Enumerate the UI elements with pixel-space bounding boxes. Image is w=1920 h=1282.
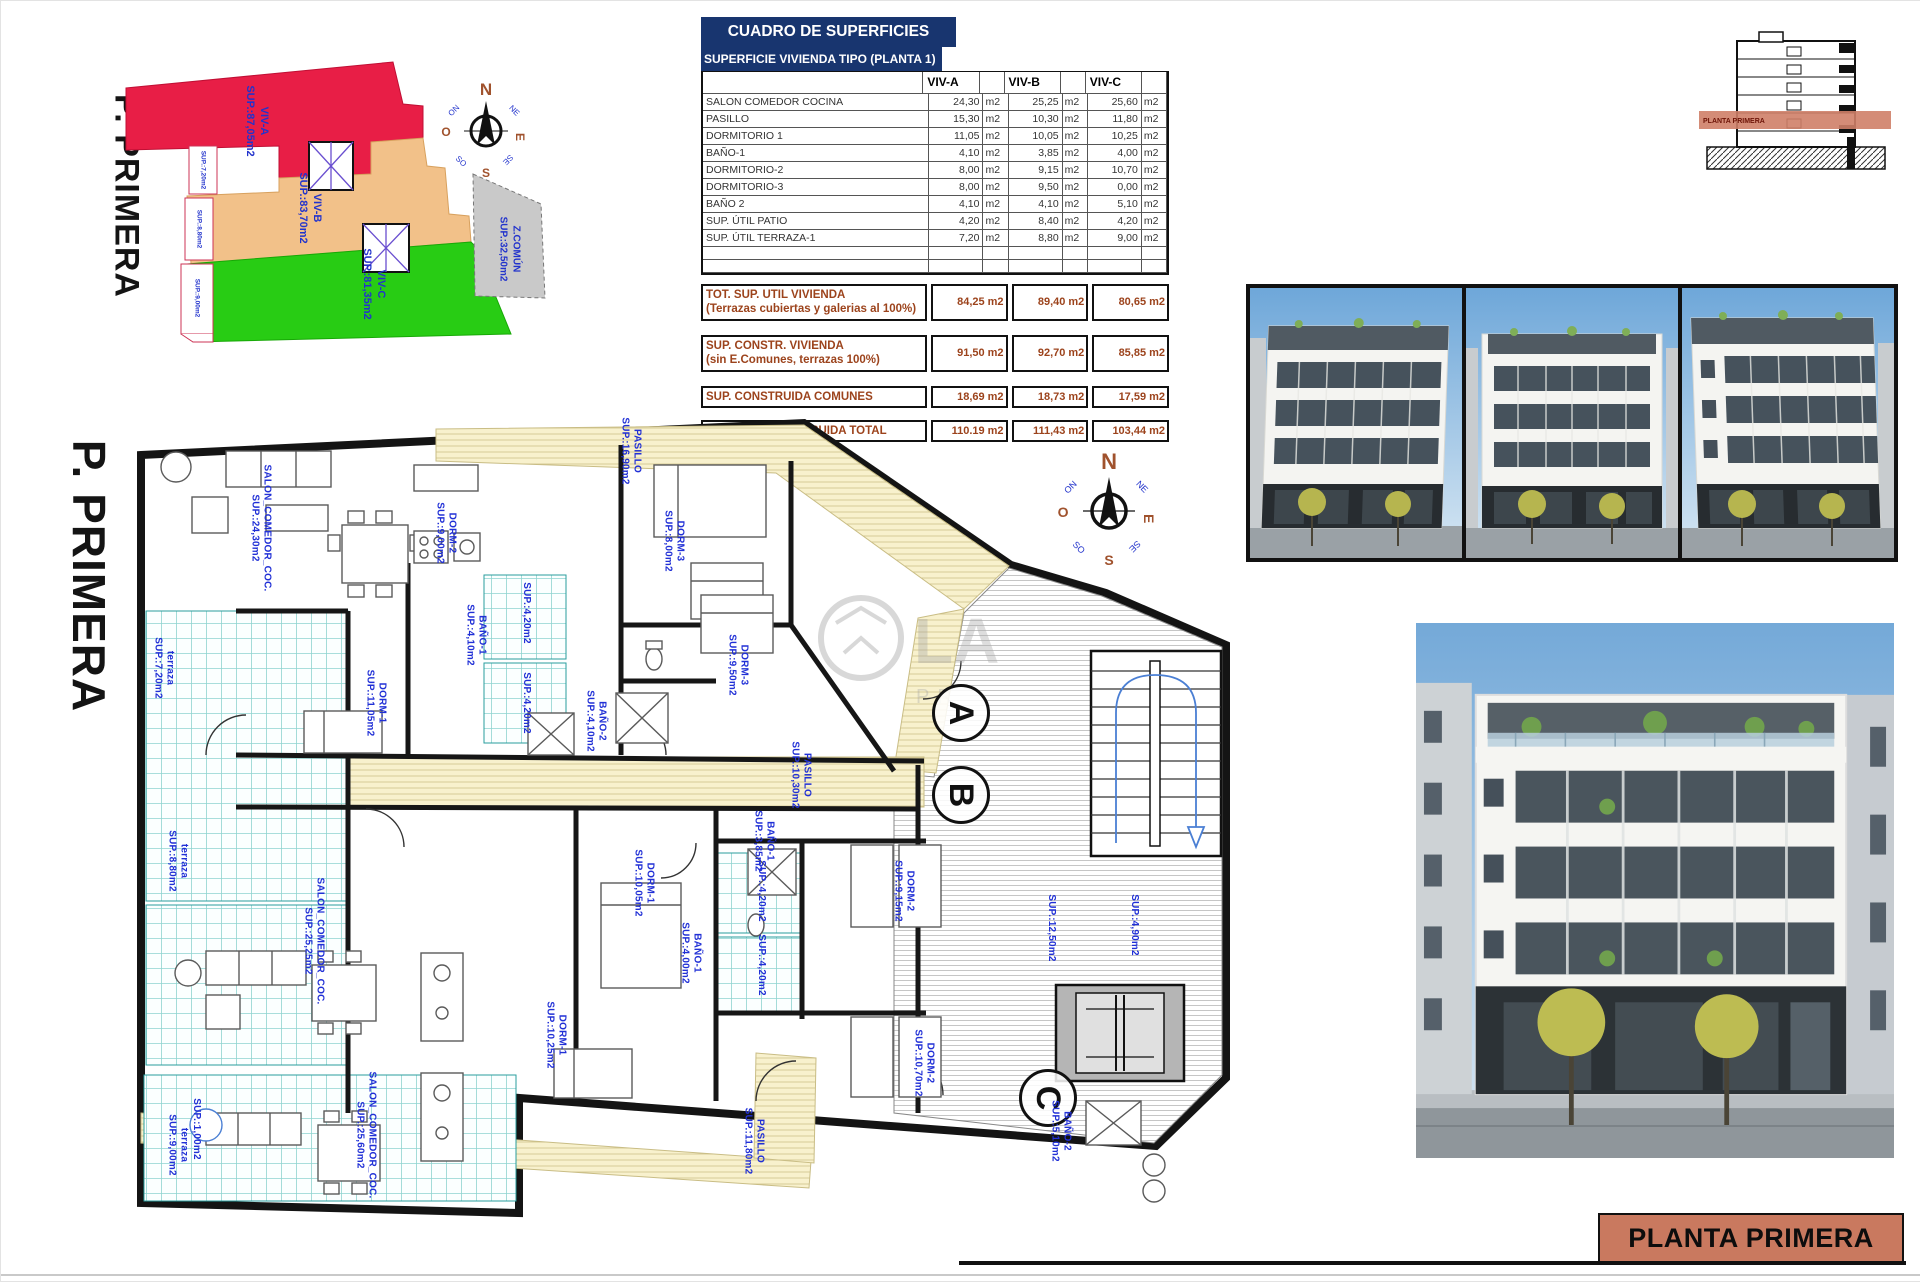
- key-plan: VIV-A SUP.:87,05m2 VIV-B SUP.:83,70m2 VI…: [71, 46, 571, 356]
- summary-sublabel: (sin E.Comunes, terrazas 100%): [706, 354, 880, 366]
- col-viv-c: VIV-C: [1086, 72, 1143, 94]
- summary-label: SUP. CONSTR. VIVIENDA: [706, 340, 844, 352]
- zone-label-viv-a: VIV-A SUP.:87,05m2: [242, 85, 270, 156]
- room-label: SALON_COMEDOR_COC. SUP.:25,25m2: [303, 878, 326, 1005]
- section-marker-b: B: [932, 766, 990, 824]
- room-label: SUP.:4,20m2: [520, 672, 532, 734]
- table-row: DORMITORIO-3 8,00m2 9,50m2 0,00m2: [703, 179, 1167, 196]
- table-row: SUP. ÚTIL TERRAZA-1 7,20m2 8,80m2 9,00m2: [703, 230, 1167, 247]
- svg-text:NE: NE: [1134, 479, 1150, 495]
- sheet-title: PLANTA PRIMERA: [1628, 1223, 1874, 1254]
- summary-label: SUP. CONSTRUIDA COMUNES: [706, 390, 873, 404]
- building-render-1: [1250, 288, 1462, 558]
- room-label: DORM-3 SUP.:8,00m2: [663, 510, 686, 572]
- zone-label-viv-b: VIV-B SUP.:83,70m2: [295, 172, 323, 243]
- surface-table: CUADRO DE SUPERFICIES SUPERFICIE VIVIEND…: [701, 17, 1169, 442]
- summary-constr-vivienda: SUP. CONSTR. VIVIENDA (sin E.Comunes, te…: [701, 335, 1169, 372]
- section-drawing: PLANTA PRIMERA: [1699, 27, 1895, 179]
- surface-table-title: CUADRO DE SUPERFICIES: [701, 17, 956, 47]
- zone-label-comun: Z.COMÚN SUP.:32,50m2: [497, 217, 522, 282]
- room-label: DORM-1 SUP.:10,05m2: [633, 849, 656, 916]
- elevator: [1056, 985, 1184, 1081]
- main-facade-render: [1416, 623, 1894, 1158]
- staircase: [1091, 651, 1221, 856]
- svg-text:N: N: [480, 80, 492, 99]
- room-label: DORM-3 SUP.:9,50m2: [727, 634, 750, 696]
- room-label: DORM-2 SUP.:9,00m2: [435, 502, 458, 564]
- svg-text:E: E: [1141, 514, 1157, 523]
- room-label: SALON_COMEDOR_COC. SUP.:24,30m2: [250, 465, 273, 592]
- room-label: SUP.:1,00m2: [190, 1098, 202, 1160]
- section-band-label: PLANTA PRIMERA: [1703, 118, 1765, 125]
- room-label: BAÑO-2 SUP.:5,10m2: [1050, 1100, 1073, 1162]
- sheet-title-block: PLANTA PRIMERA: [1598, 1213, 1904, 1263]
- facade-renders-strip: [1246, 284, 1898, 562]
- summary-label: TOT. SUP. UTIL VIVIENDA: [706, 289, 845, 301]
- plan-sheet: P. PRIMERA: [0, 0, 1920, 1282]
- svg-text:O: O: [441, 125, 450, 139]
- strip-label-2: SUP.:8,80m2: [196, 210, 203, 249]
- table-row: SALON COMEDOR COCINA 24,30m2 25,25m2 25,…: [703, 94, 1167, 111]
- room-label: DORM-2 SUP.:9,15m2: [893, 860, 916, 922]
- svg-text:SE: SE: [501, 153, 515, 167]
- zone-label-viv-c: VIV-C SUP.:81,35m2: [359, 248, 387, 319]
- table-row: BAÑO-1 4,10m2 3,85m2 4,00m2: [703, 145, 1167, 162]
- strip-label-1: SUP.:7,20m2: [200, 151, 207, 190]
- section-marker-a: A: [932, 684, 990, 742]
- table-row: PASILLO 15,30m2 10,30m2 11,80m2: [703, 111, 1167, 128]
- room-label: terraza SUP.:8,80m2: [167, 830, 190, 892]
- room-label: DORM-1 SUP.:11,05m2: [365, 670, 388, 737]
- table-empty-row: [703, 247, 1167, 260]
- svg-text:O: O: [1058, 504, 1069, 520]
- svg-text:NO: NO: [1062, 479, 1079, 496]
- compass-rose-keyplan: N E S O NE SE SO NO: [431, 76, 541, 186]
- summary-sublabel: (Terrazas cubiertas y galerias al 100%): [706, 303, 916, 315]
- svg-text:SO: SO: [1071, 539, 1087, 555]
- svg-text:N: N: [1101, 449, 1117, 474]
- surface-table-subtitle: SUPERFICIE VIVIENDA TIPO (PLANTA 1): [701, 47, 942, 71]
- svg-text:E: E: [513, 133, 527, 141]
- svg-text:NO: NO: [446, 103, 461, 118]
- room-label: SUP.:4,20m2: [755, 934, 767, 996]
- room-label: DORM-1 SUP.:10,25m2: [545, 1001, 568, 1068]
- building-render-3: [1682, 288, 1894, 558]
- col-viv-a: VIV-A: [923, 72, 980, 94]
- table-row: SUP. ÚTIL PATIO 4,20m2 8,40m2 4,20m2: [703, 213, 1167, 230]
- table-row: DORMITORIO 1 11,05m2 10,05m2 10,25m2: [703, 128, 1167, 145]
- svg-text:NE: NE: [507, 103, 521, 117]
- table-header-row: VIV-A VIV-B VIV-C: [703, 72, 1167, 94]
- room-label: terraza SUP.:9,00m2: [167, 1114, 190, 1176]
- room-label: BAÑO-1 SUP.:4,00m2: [680, 922, 703, 984]
- page-edge-rule: [1, 1274, 1920, 1276]
- room-label: BAÑO-1 SUP.:4,10m2: [465, 604, 488, 666]
- room-label: PASILLO SUP.:11,80m2: [743, 1108, 766, 1175]
- floor-plan: LA PR N E S O NE SE SO NO A B C SALON_C: [56, 413, 1236, 1223]
- svg-text:SO: SO: [454, 154, 469, 169]
- surface-table-grid: VIV-A VIV-B VIV-C SALON COMEDOR COCINA 2…: [701, 71, 1169, 275]
- svg-text:S: S: [1104, 552, 1113, 568]
- room-label: SALON_COMEDOR_COC. SUP.:25,60m2: [355, 1072, 378, 1199]
- col-viv-b: VIV-B: [1005, 72, 1062, 94]
- table-row: BAÑO 2 4,10m2 4,10m2 5,10m2: [703, 196, 1167, 213]
- room-label: SUP.:4,20m2: [520, 582, 532, 644]
- compass-rose-plan: N E S O NE SE SO NO: [1058, 449, 1157, 568]
- room-label: PASILLO SUP.:16,90m2: [620, 417, 643, 484]
- room-label: SUP.:4,90m2: [1128, 894, 1140, 956]
- building-render-2: [1466, 288, 1678, 558]
- table-row: DORMITORIO-2 8,00m2 9,15m2 10,70m2: [703, 162, 1167, 179]
- room-label: terraza SUP.:7,20m2: [153, 637, 176, 699]
- table-empty-row: [703, 260, 1167, 273]
- room-label: BAÑO-2 SUP.:4,10m2: [585, 690, 608, 752]
- summary-total-util: TOT. SUP. UTIL VIVIENDA (Terrazas cubier…: [701, 284, 1169, 321]
- room-label: SUP.:4,20m2: [755, 860, 767, 922]
- summary-comunes: SUP. CONSTRUIDA COMUNES 18,69m2 18,73m2 …: [701, 386, 1169, 408]
- svg-text:S: S: [482, 166, 490, 180]
- svg-text:LA: LA: [914, 605, 999, 677]
- room-label: DORM-2 SUP.:10,70m2: [913, 1029, 936, 1096]
- room-label: PASILLO SUP.:10,30m2: [790, 741, 813, 808]
- strip-label-3: SUP.:9,00m2: [194, 279, 201, 318]
- svg-text:SE: SE: [1127, 539, 1143, 555]
- room-label: SUP.:12,50m2: [1045, 894, 1057, 961]
- building-section-thumb: PLANTA PRIMERA: [1699, 27, 1895, 179]
